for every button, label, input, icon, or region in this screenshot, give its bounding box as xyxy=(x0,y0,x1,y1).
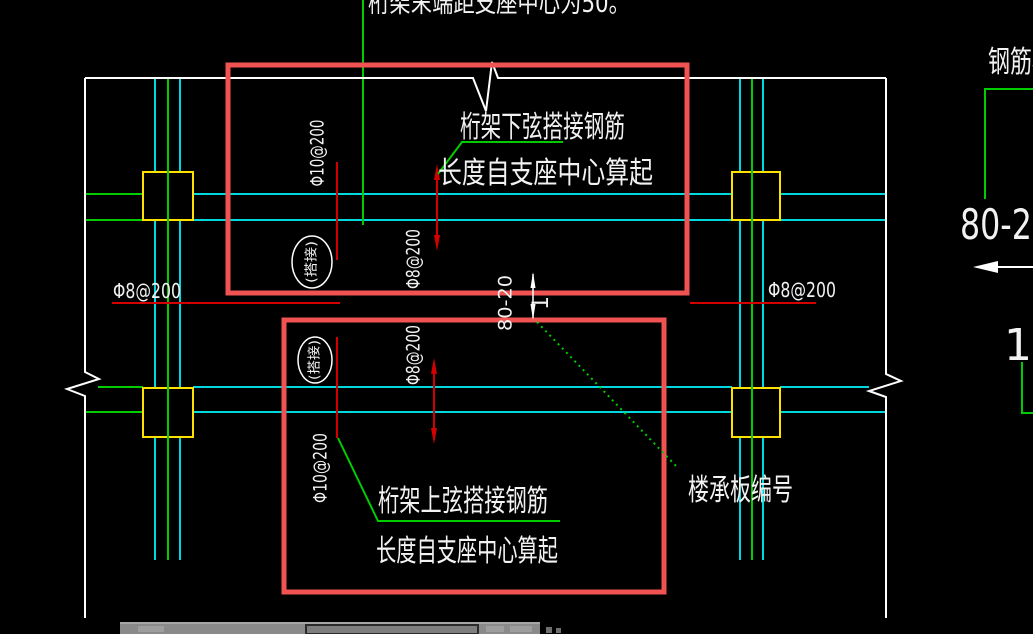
gap-dimension-value: 80-20 xyxy=(495,275,517,331)
column-box-bottom-right xyxy=(732,388,780,437)
column-box-top-right xyxy=(732,172,780,220)
deck-number-label: 楼承板编号 xyxy=(688,473,793,508)
taskbar[interactable] xyxy=(120,622,561,634)
cad-drawing-area[interactable]: 80-20 1 Φ10@200 Φ8@200 Φ8@200 Φ10@200 (搭… xyxy=(0,0,1033,634)
legend-left-arrow-icon xyxy=(973,261,1033,273)
note-bottom-chord-line1: 桁架下弦搭接钢筋 xyxy=(460,110,625,145)
rebar-arrow-bottom-box xyxy=(431,358,437,444)
note-bottom-chord-line2: 长度自支座中心算起 xyxy=(438,156,653,191)
rebar-label-phi10-top: Φ10@200 xyxy=(307,120,329,187)
rebar-label-phi8-top: Φ8@200 xyxy=(403,229,425,289)
taskbar-inner-box[interactable] xyxy=(306,625,478,634)
top-border-break-line xyxy=(85,62,886,111)
taskbar-item-right-2[interactable] xyxy=(510,626,532,632)
note-top-chord-line2: 长度自支座中心算起 xyxy=(376,534,558,569)
lap-label-top: (搭接) xyxy=(304,241,320,283)
gap-dimension xyxy=(531,272,536,320)
left-border-break-line xyxy=(67,78,99,618)
rebar-label-left: Φ8@200 xyxy=(113,279,181,303)
gap-dimension-index: 1 xyxy=(529,296,554,310)
column-boxes xyxy=(143,172,780,437)
taskbar-item-right-1[interactable] xyxy=(486,626,504,632)
note-top-chord-line1: 桁架上弦搭接钢筋 xyxy=(378,484,548,519)
lap-label-bottom: (搭接) xyxy=(307,340,323,380)
legend-right: 钢筋桁架 80-20 1 xyxy=(960,45,1033,413)
taskbar-stray-mark-2 xyxy=(556,628,561,633)
right-border-break-line xyxy=(869,78,901,618)
legend-mark-number: 1 xyxy=(1004,320,1032,371)
leader-deck-number xyxy=(537,322,677,467)
rebar-label-phi10-bottom: Φ10@200 xyxy=(310,433,332,503)
cad-canvas[interactable]: 80-20 1 Φ10@200 Φ8@200 Φ8@200 Φ10@200 (搭… xyxy=(0,0,1033,634)
taskbar-highlight xyxy=(120,622,540,624)
taskbar-stray-mark-1 xyxy=(546,627,552,633)
legend-bracket-top xyxy=(985,89,1033,199)
rebar-label-phi8-bottom: Φ8@200 xyxy=(403,325,425,385)
rebar-annotation-lines xyxy=(112,162,816,444)
legend-deck-model: 80-20 xyxy=(960,200,1033,249)
top-note-cut: 桁架末端距支座中心为50。 xyxy=(368,0,630,19)
taskbar-item-left[interactable] xyxy=(138,626,164,632)
rebar-label-right: Φ8@200 xyxy=(768,278,836,302)
legend-truss-text: 钢筋桁架 xyxy=(988,45,1033,80)
